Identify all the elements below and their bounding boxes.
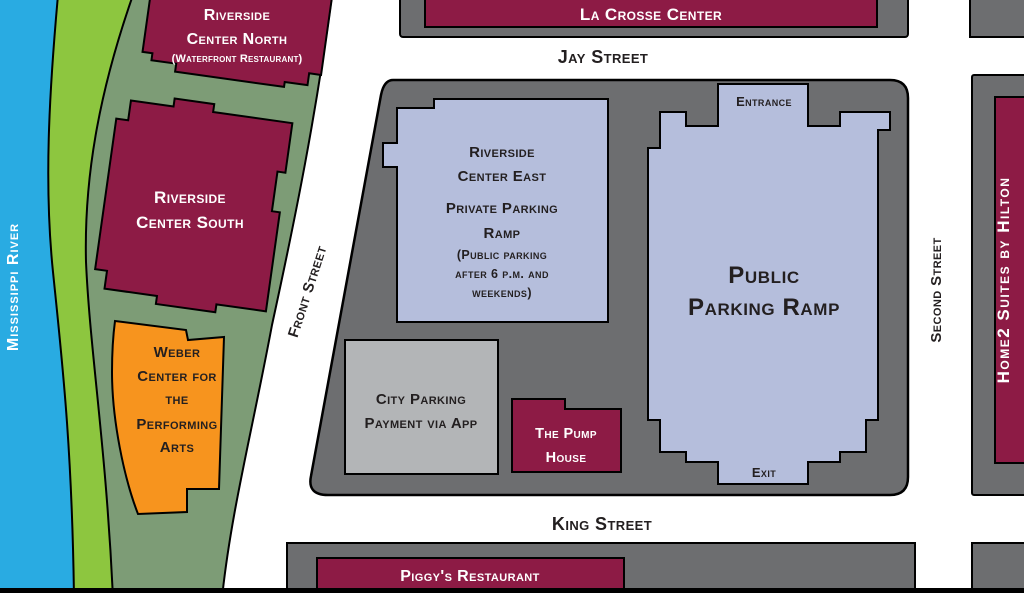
riverside-center-east-label: Center East bbox=[458, 168, 547, 185]
public-parking-ramp-label: Public bbox=[728, 262, 800, 289]
front-street-label: Front Street bbox=[285, 244, 331, 340]
pump-house-label: The Pump bbox=[535, 426, 597, 442]
second-street-label: Second Street bbox=[928, 237, 945, 342]
riverside-center-south-label: Center South bbox=[136, 213, 244, 232]
downtown-parking-map: Riverside Center North (Waterfront Resta… bbox=[0, 0, 1024, 593]
mississippi-river-label: Mississippi River bbox=[5, 223, 22, 351]
city-parking-label: Payment via App bbox=[364, 415, 477, 432]
city-parking-label: City Parking bbox=[376, 391, 466, 408]
ramp-exit-label: Exit bbox=[752, 465, 776, 480]
home2-suites-label: Home2 Suites by Hilton bbox=[994, 177, 1013, 384]
jay-street-label: Jay Street bbox=[558, 47, 649, 67]
riverside-center-north-label: Center North bbox=[187, 31, 288, 48]
riverside-center-north-label: Riverside bbox=[204, 7, 271, 24]
riverside-center-east-label: Riverside bbox=[469, 144, 535, 161]
corner-block-north-east bbox=[970, 0, 1024, 37]
weber-center-label: Arts bbox=[160, 439, 194, 456]
riverside-center-east-sublabel: after 6 p.m. and bbox=[455, 267, 549, 281]
riverside-center-east-label: Ramp bbox=[484, 225, 521, 242]
corner-block-south-east bbox=[972, 543, 1024, 593]
public-parking-ramp-label: Parking Ramp bbox=[688, 294, 840, 321]
king-street-label: King Street bbox=[552, 514, 652, 534]
map-canvas: Riverside Center North (Waterfront Resta… bbox=[0, 0, 1024, 593]
weber-center-label: the bbox=[165, 391, 188, 408]
riverside-center-east-sublabel: weekends) bbox=[472, 286, 532, 300]
weber-center-label: Weber bbox=[154, 344, 201, 361]
riverside-center-south-label: Riverside bbox=[154, 188, 226, 207]
map-bottom-border bbox=[0, 588, 1024, 593]
riverside-center-north-sublabel: (Waterfront Restaurant) bbox=[172, 53, 303, 65]
riverside-center-east-label: Private Parking bbox=[446, 200, 558, 217]
riverside-center-east-sublabel: (Public parking bbox=[457, 248, 547, 262]
pump-house-label: House bbox=[546, 450, 587, 466]
la-crosse-center-label: La Crosse Center bbox=[580, 5, 722, 24]
weber-center-label: Center for bbox=[137, 368, 217, 385]
weber-center-label: Performing bbox=[136, 416, 217, 433]
piggys-restaurant-label: Piggy's Restaurant bbox=[400, 568, 540, 585]
ramp-entrance-label: Entrance bbox=[736, 94, 792, 109]
